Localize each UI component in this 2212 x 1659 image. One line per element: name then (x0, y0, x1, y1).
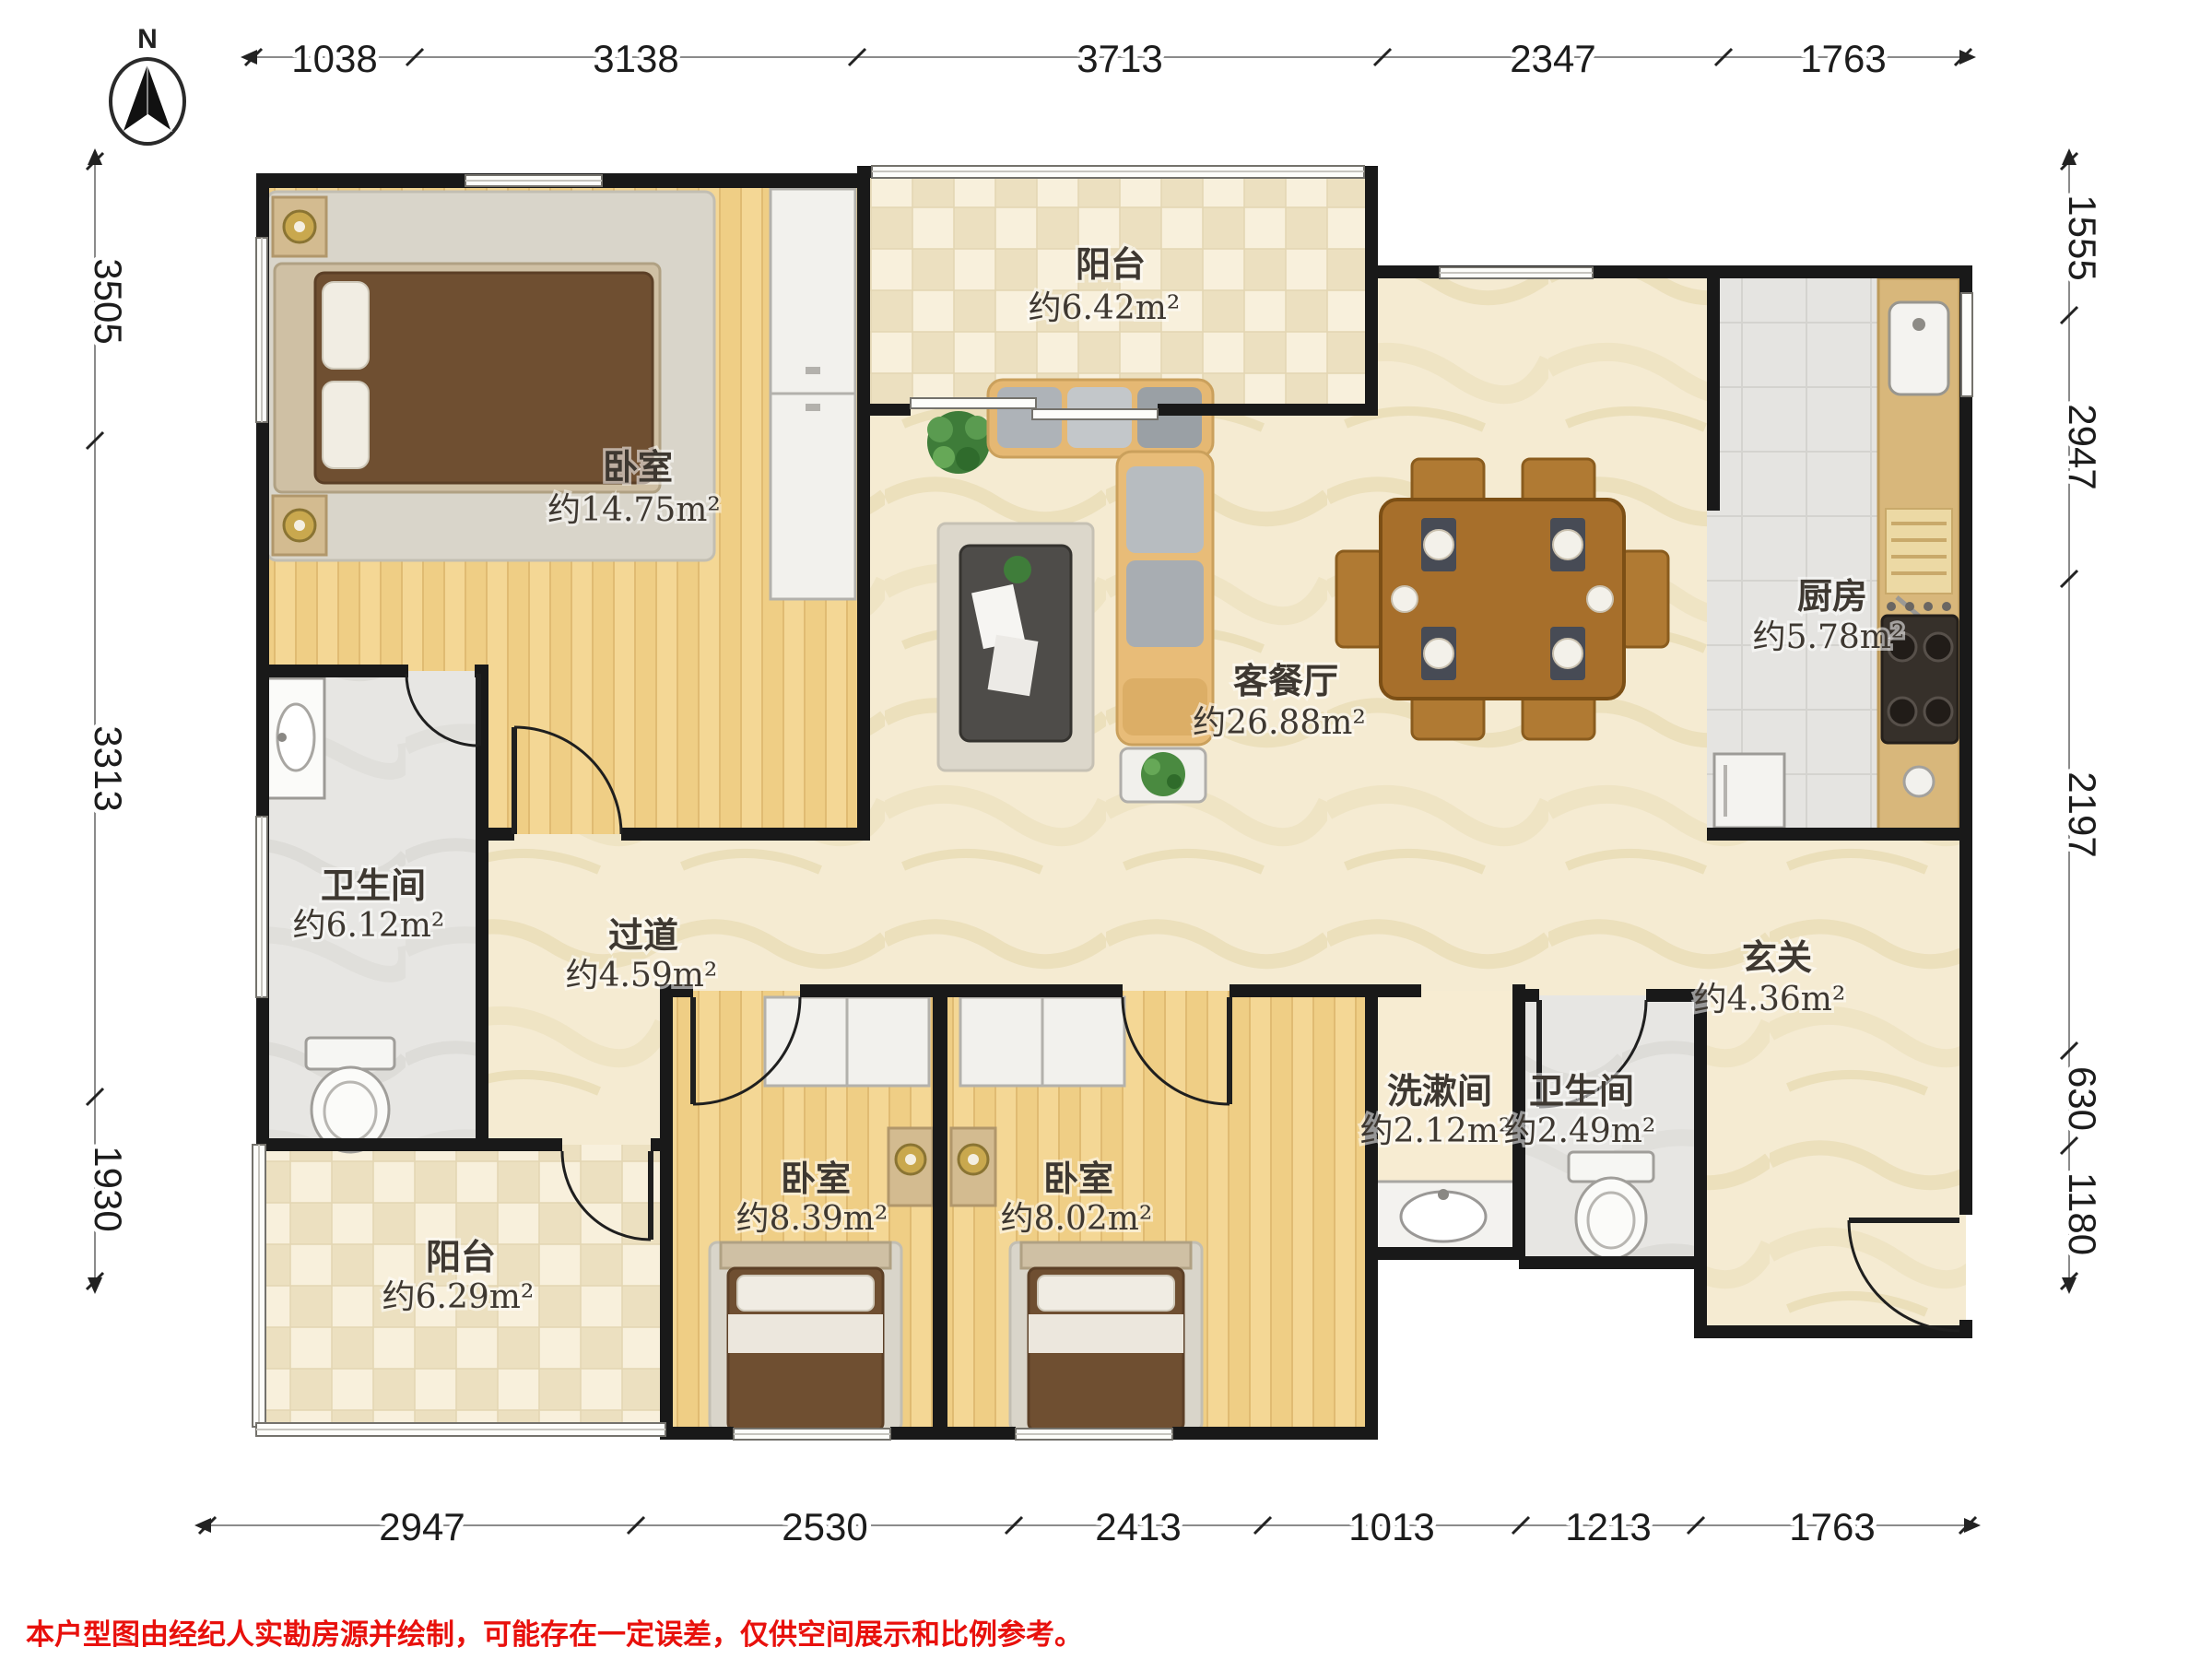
sliding-door-icon (911, 398, 1036, 408)
kitchen-sink-icon (1889, 302, 1948, 394)
label-bathroom-main: 卫生间 (321, 865, 426, 906)
bathroom-sink-icon (267, 678, 324, 798)
floor-plan-canvas: 1038 3138 3713 2347 1763 3505 3313 1930 … (0, 0, 2212, 1659)
wardrobe-icon (771, 189, 855, 599)
area-living-dining: 约26.88m² (1193, 704, 1366, 742)
label-balcony-bottom: 阳台 (426, 1236, 496, 1277)
label-kitchen: 厨房 (1797, 575, 1867, 617)
dimension-bottom: 2947 2530 2413 1013 1213 1763 (194, 1505, 1981, 1548)
area-balcony-bottom: 约6.29m² (382, 1278, 535, 1316)
label-entry: 玄关 (1742, 936, 1812, 978)
dim-top-4: 1763 (1800, 37, 1886, 80)
dim-top-1: 3138 (593, 37, 678, 80)
area-balcony-top: 约6.42m² (1029, 289, 1181, 327)
dim-left-1: 3313 (87, 725, 130, 811)
compass-icon: N (111, 24, 184, 144)
dim-bottom-4: 1213 (1565, 1505, 1651, 1548)
area-hallway: 约4.59m² (566, 957, 718, 994)
dim-top-2: 3713 (1077, 37, 1162, 80)
dim-top-0: 1038 (291, 37, 377, 80)
area-entry: 约4.36m² (1694, 981, 1846, 1018)
label-bedroom-3: 卧室 (1043, 1158, 1113, 1199)
area-master-bedroom: 约14.75m² (547, 491, 721, 529)
label-bedroom-2: 卧室 (781, 1158, 851, 1199)
label-master-bedroom: 卧室 (603, 446, 673, 488)
area-bathroom-main: 约6.12m² (293, 907, 445, 945)
area-kitchen: 约5.78m² (1753, 618, 1905, 656)
floor-plan-page: 1038 3138 3713 2347 1763 3505 3313 1930 … (0, 0, 2212, 1659)
room-hallway-strip (488, 991, 660, 1145)
sliding-door-icon (1032, 409, 1158, 419)
dimension-right: 1555 2947 2197 630 1180 (2061, 148, 2104, 1294)
dim-left-2: 1930 (87, 1146, 130, 1231)
dimension-top: 1038 3138 3713 2347 1763 (241, 37, 1976, 80)
dim-right-3: 630 (2061, 1066, 2104, 1131)
plant-icon (927, 411, 990, 474)
dim-right-4: 1180 (2061, 1172, 2104, 1255)
dim-bottom-3: 1013 (1348, 1505, 1434, 1548)
room-entry (1707, 834, 1966, 1332)
label-washroom: 洗漱间 (1387, 1070, 1492, 1112)
toilet-icon (306, 1038, 394, 1152)
area-bedroom-3: 约8.02m² (1001, 1200, 1153, 1238)
dim-right-0: 1555 (2061, 194, 2104, 280)
disclaimer-text: 本户型图由经纪人实勘房源并绘制，可能存在一定误差，仅供空间展示和比例参考。 (26, 1618, 1083, 1651)
label-bathroom-small: 卫生间 (1529, 1070, 1634, 1112)
area-bathroom-small: 约2.49m² (1504, 1112, 1656, 1150)
cutting-board-icon (1886, 509, 1952, 594)
area-washroom: 约2.12m² (1360, 1112, 1512, 1150)
dim-bottom-2: 2413 (1095, 1505, 1181, 1548)
dim-right-1: 2947 (2061, 404, 2104, 489)
window-icon (1961, 293, 1972, 396)
dim-bottom-1: 2530 (782, 1505, 867, 1548)
label-balcony-top: 阳台 (1076, 243, 1146, 285)
label-hallway: 过道 (608, 914, 678, 956)
compass-north-label: N (137, 24, 158, 54)
dim-right-2: 2197 (2061, 771, 2104, 857)
washroom-sink-icon (1375, 1182, 1515, 1250)
dim-bottom-5: 1763 (1789, 1505, 1875, 1548)
dim-bottom-0: 2947 (379, 1505, 465, 1548)
dim-top-3: 2347 (1510, 37, 1595, 80)
dimension-left: 3505 3313 1930 (87, 148, 130, 1294)
label-living-dining: 客餐厅 (1233, 660, 1338, 701)
dim-left-0: 3505 (87, 258, 130, 344)
side-table-plant-icon (1121, 748, 1206, 802)
area-bedroom-2: 约8.39m² (736, 1200, 888, 1238)
